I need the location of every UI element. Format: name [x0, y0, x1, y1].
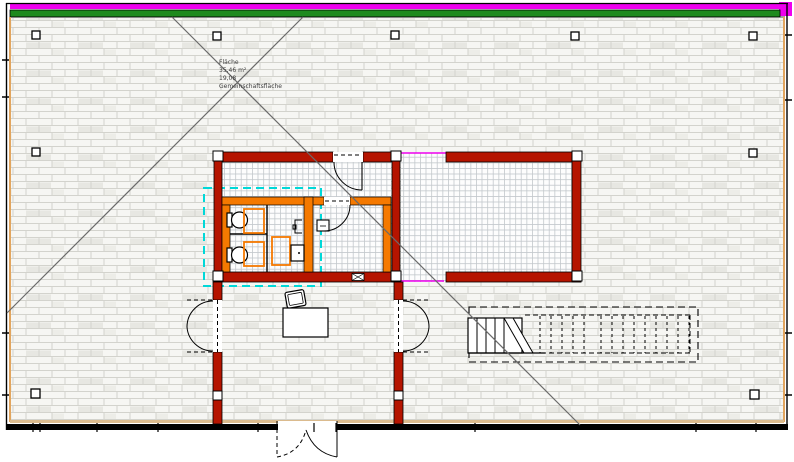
chair-icon	[285, 289, 306, 308]
column	[31, 389, 40, 398]
area-label-line: Fläche	[219, 59, 239, 66]
column	[749, 32, 757, 40]
basin-icon	[317, 220, 329, 231]
wall-segment	[213, 282, 222, 300]
left-trim-line	[9, 17, 11, 422]
area-label-line: Gemeinschaftsfläche	[219, 83, 282, 90]
right-trim-line	[783, 17, 785, 422]
wall-segment	[446, 272, 581, 282]
column	[213, 32, 221, 40]
wall-segment	[394, 352, 403, 392]
column	[749, 149, 757, 157]
floorplan-canvas[interactable]: Fläche 35,46 m² 19,08 Gemeinschaftsfläch…	[0, 0, 794, 462]
wall-segment	[214, 152, 222, 282]
wall-segment	[213, 400, 222, 424]
green-band	[10, 10, 780, 17]
wall-segment	[446, 152, 581, 162]
wall-segment	[383, 205, 391, 272]
wall-segment	[214, 272, 400, 282]
magenta-band	[10, 4, 780, 9]
area-label-line: 19,08	[219, 75, 236, 82]
column	[32, 31, 40, 39]
wall-segment	[394, 282, 403, 300]
wall-segment	[392, 152, 400, 282]
desk	[283, 308, 328, 337]
sink-icon	[291, 245, 304, 261]
area-label-line: 35,46 m²	[219, 67, 247, 74]
wall-segment	[304, 197, 313, 272]
wall-opening-marker	[352, 274, 364, 281]
column	[32, 148, 40, 156]
column	[571, 32, 579, 40]
wall-segment	[394, 400, 403, 424]
wall-segment	[572, 152, 581, 282]
bottom-exterior-wall	[6, 424, 788, 430]
column	[750, 390, 759, 399]
wall-segment	[213, 352, 222, 392]
column	[391, 31, 399, 39]
